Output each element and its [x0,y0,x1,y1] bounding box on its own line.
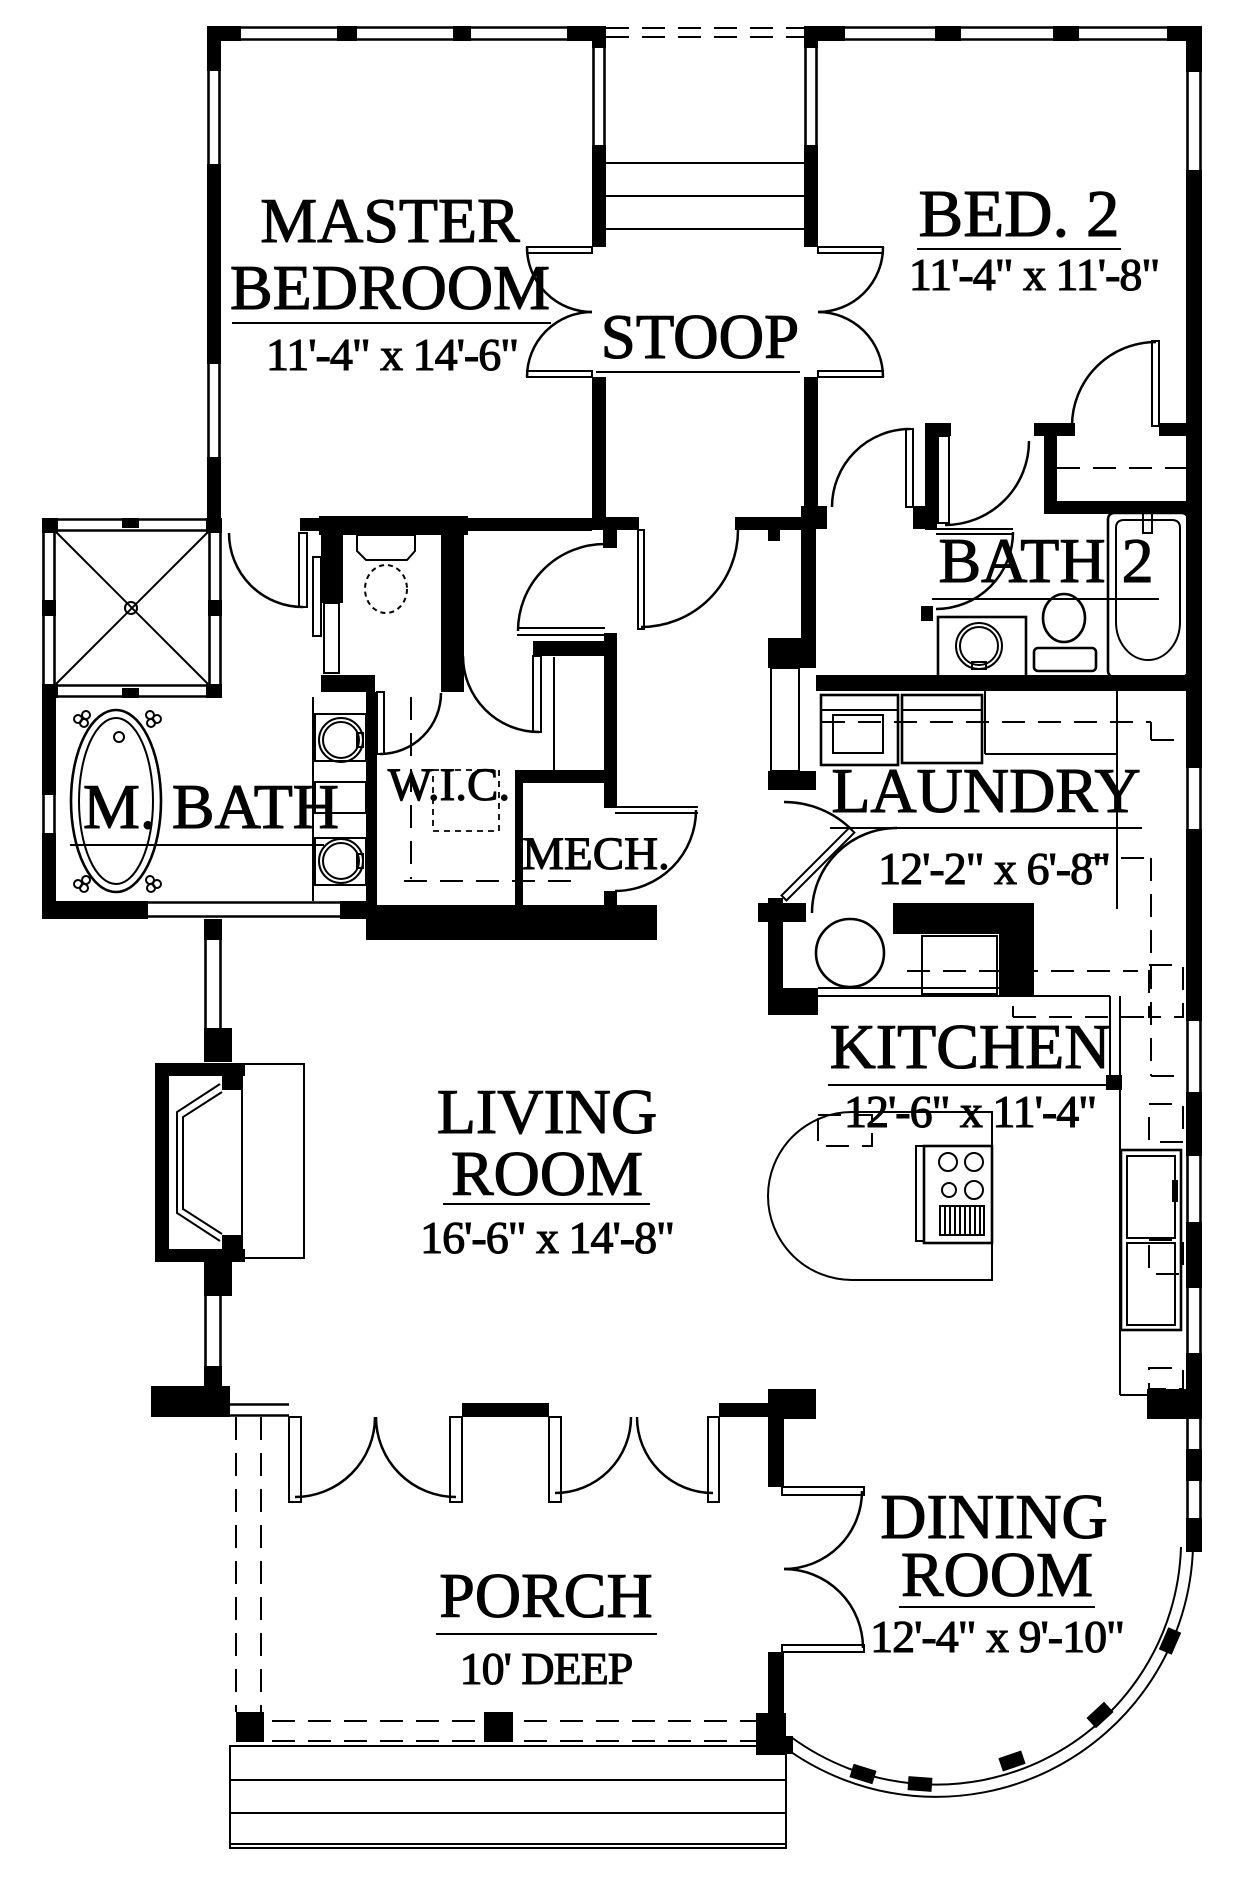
svg-text:BEDROOM: BEDROOM [230,252,550,323]
svg-text:MECH.: MECH. [522,828,670,880]
svg-text:LIVING: LIVING [437,1076,657,1147]
svg-text:KITCHEN: KITCHEN [830,1011,1111,1082]
svg-text:12'-2" x 6'-8": 12'-2" x 6'-8" [878,843,1110,894]
svg-text:STOOP: STOOP [601,302,799,372]
svg-text:W.I.C.: W.I.C. [388,759,510,811]
svg-text:16'-6" x 14'-8": 16'-6" x 14'-8" [420,1212,674,1263]
svg-text:11'-4" x 11'-8": 11'-4" x 11'-8" [909,249,1159,300]
svg-text:BED. 2: BED. 2 [919,177,1120,251]
svg-text:10' DEEP: 10' DEEP [460,1643,633,1694]
svg-text:ROOM: ROOM [451,1138,643,1209]
svg-text:BATH 2: BATH 2 [938,525,1153,596]
svg-text:11'-4" x 14'-6": 11'-4" x 14'-6" [266,329,518,380]
svg-text:MASTER: MASTER [260,185,520,256]
svg-text:LAUNDRY: LAUNDRY [831,755,1140,826]
svg-text:ROOM: ROOM [901,1539,1093,1610]
svg-text:M. BATH: M. BATH [83,771,339,842]
svg-text:12'-4" x 9'-10": 12'-4" x 9'-10" [870,1611,1124,1662]
svg-text:PORCH: PORCH [439,1560,652,1631]
svg-text:12'-6" x 11'-4": 12'-6" x 11'-4" [844,1086,1096,1137]
